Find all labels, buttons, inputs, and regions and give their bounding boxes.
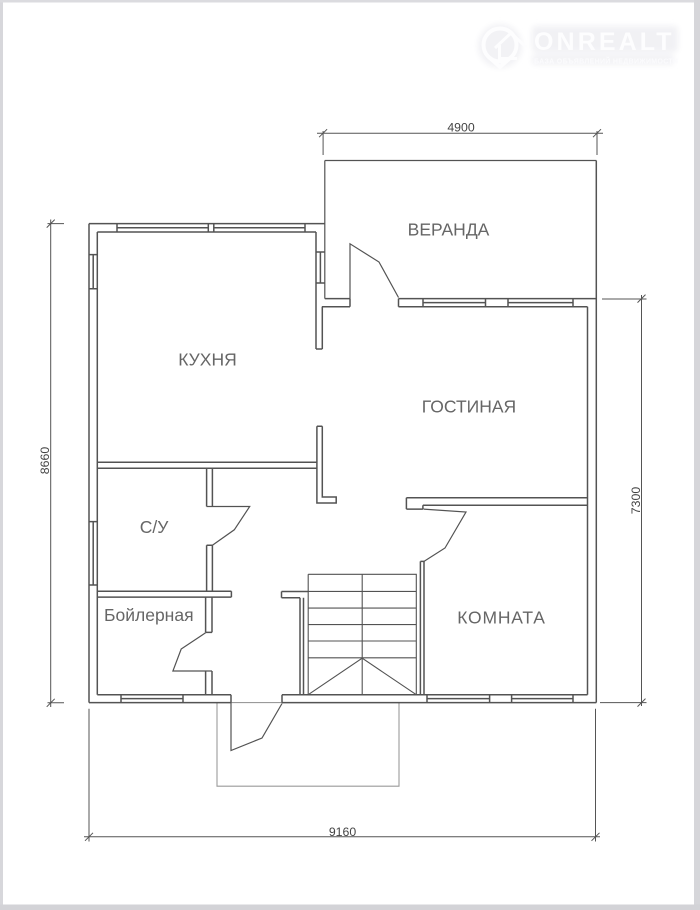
svg-text:ONREALT: ONREALT [534,28,675,56]
svg-text:КУХНЯ: КУХНЯ [178,350,236,370]
svg-text:С/У: С/У [140,517,170,537]
svg-text:КОМНАТА: КОМНАТА [457,608,546,628]
svg-text:Бойлерная: Бойлерная [104,605,194,625]
svg-text:4900: 4900 [447,121,475,135]
svg-text:9160: 9160 [329,825,357,839]
svg-text:8660: 8660 [38,447,52,475]
svg-text:ГОСТИНАЯ: ГОСТИНАЯ [422,397,516,417]
svg-text:БАЗА ОБЪЯВЛЕНИЙ НЕДВИЖИМОСТИ: БАЗА ОБЪЯВЛЕНИЙ НЕДВИЖИМОСТИ [534,57,678,66]
svg-text:7300: 7300 [629,487,643,515]
svg-text:ВЕРАНДА: ВЕРАНДА [408,220,490,240]
